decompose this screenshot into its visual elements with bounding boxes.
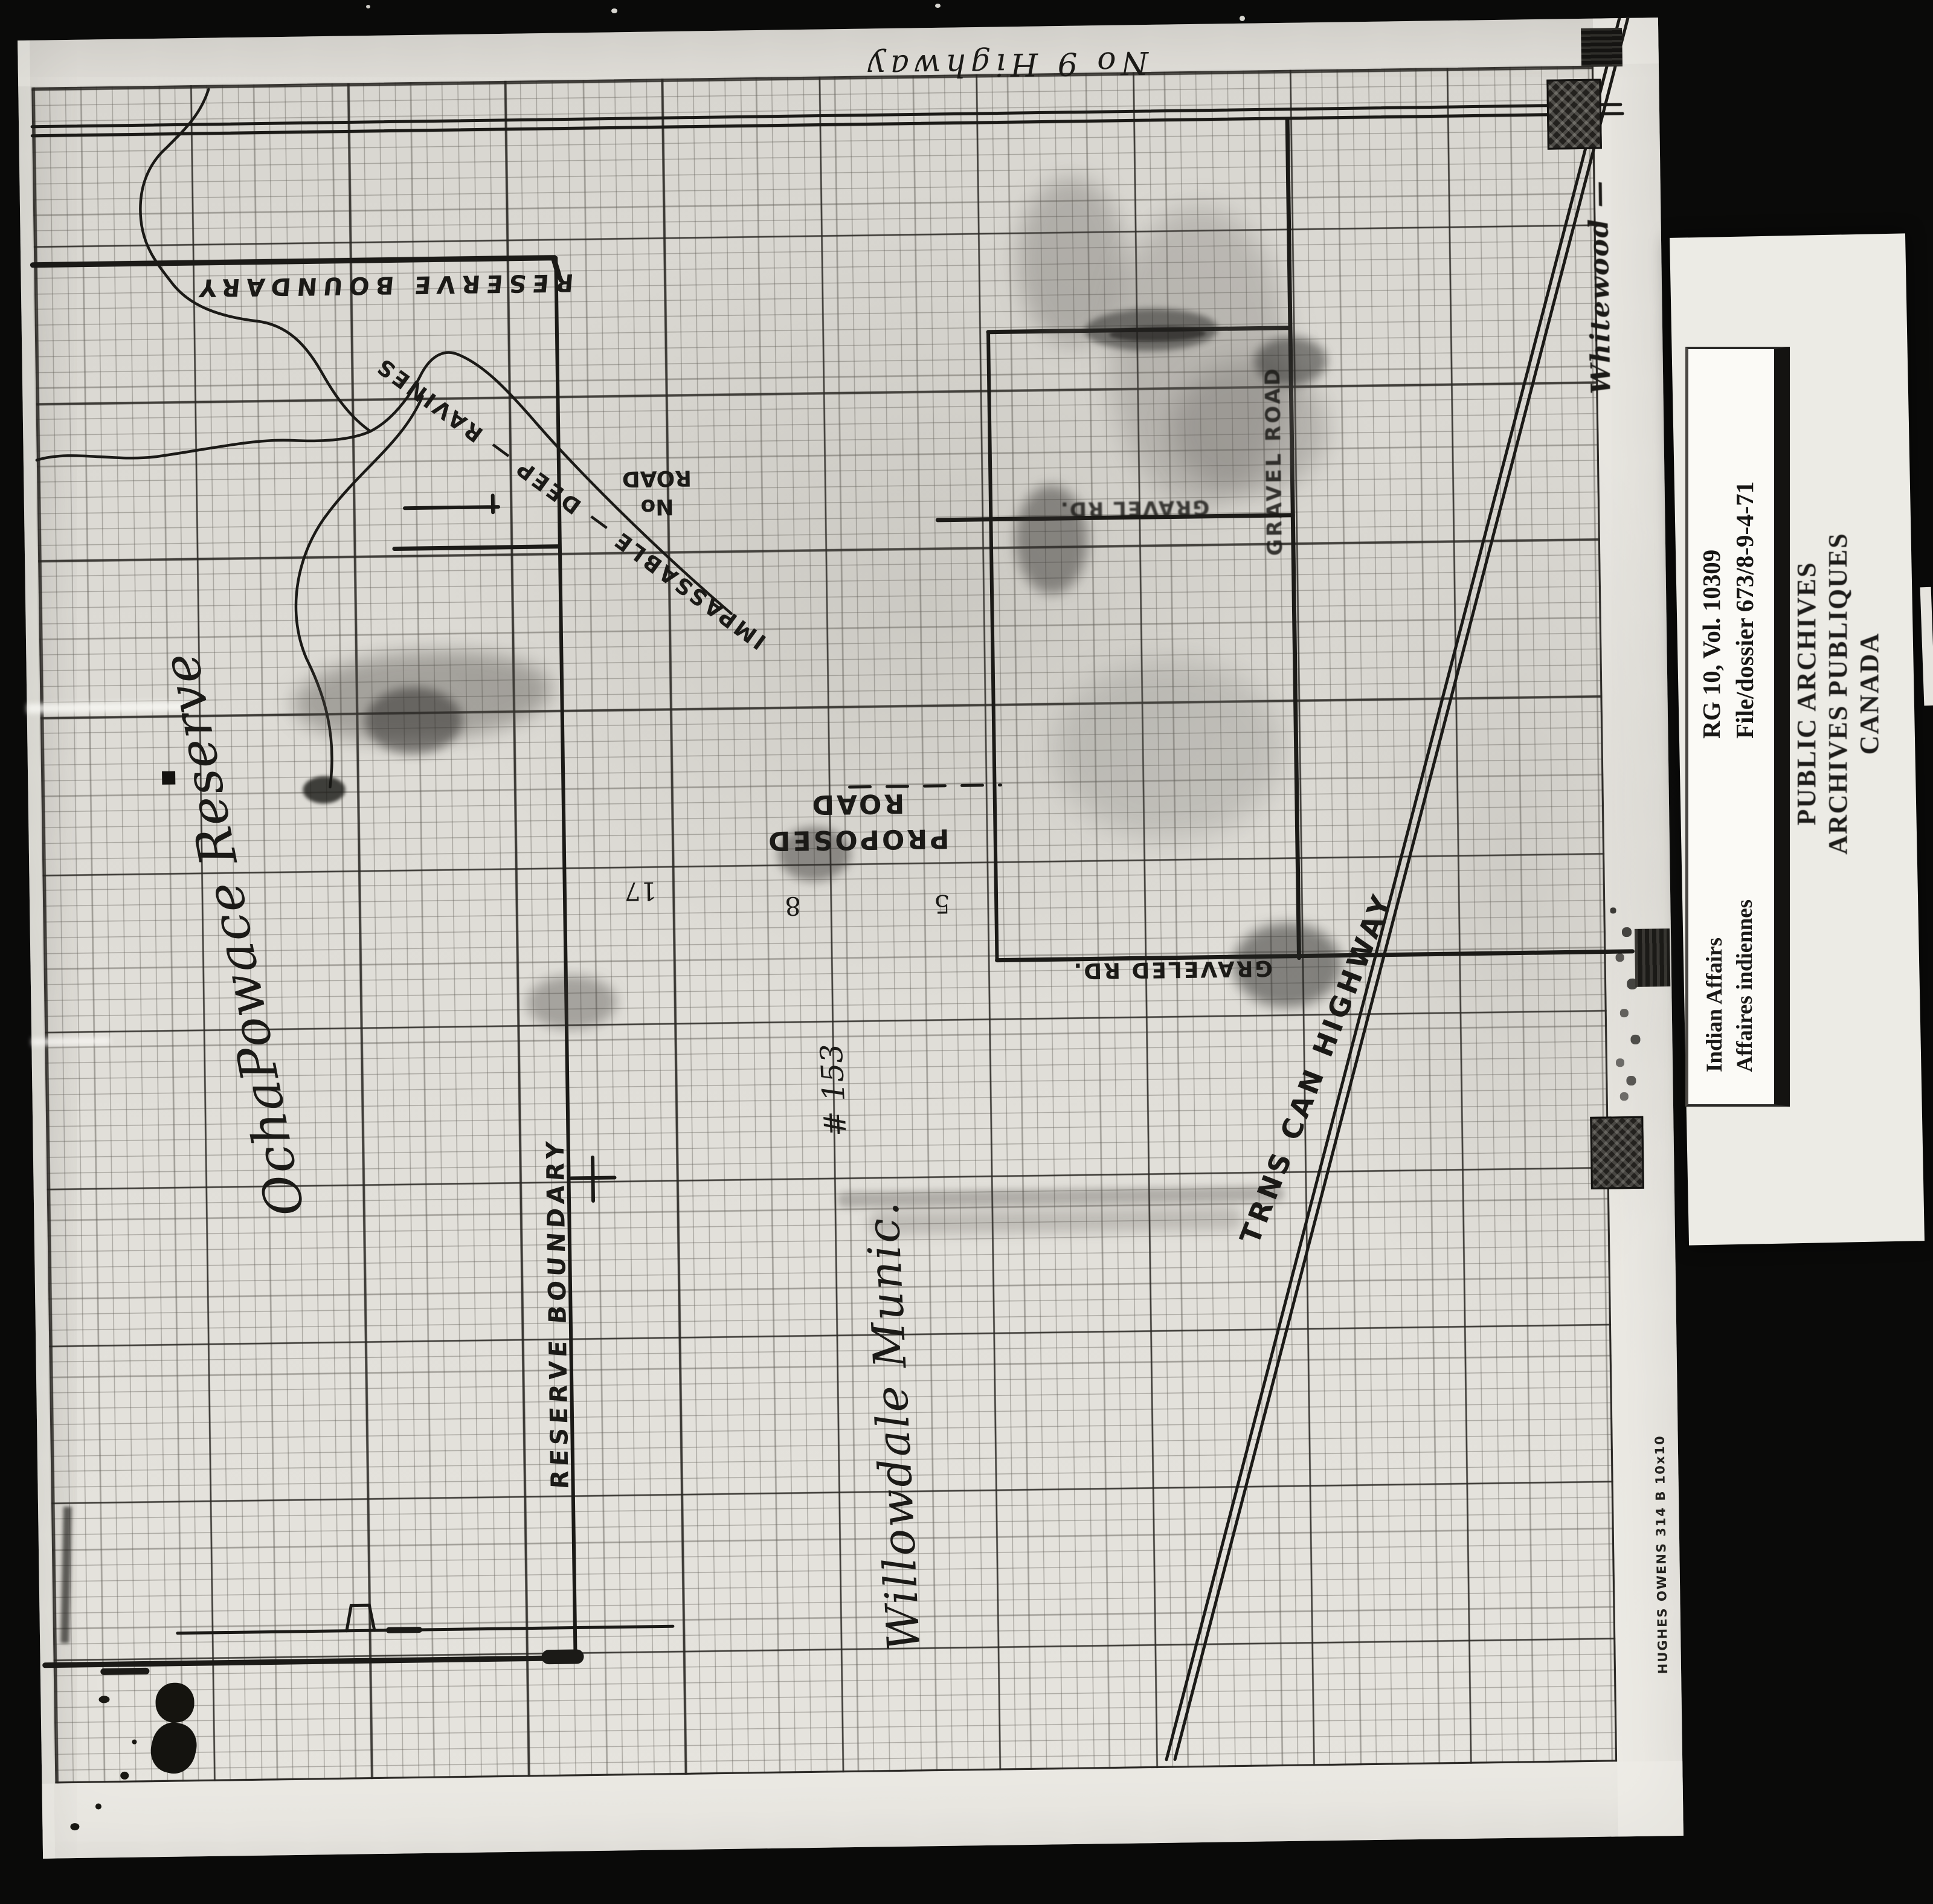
reference-label: RG 10, Vol. 10309 File/dossier 673/8-9-4…	[1695, 481, 1762, 739]
survey-tick	[571, 1157, 615, 1201]
whitewood-label: Whitewood —	[1583, 179, 1617, 394]
tape-patch	[1635, 928, 1670, 987]
section-number-5: 5	[934, 889, 950, 919]
dust-speck	[366, 5, 370, 8]
section-number-17: 17	[625, 876, 657, 906]
building-symbol	[346, 1605, 375, 1631]
crosshatched-square	[1590, 1116, 1644, 1189]
section-road	[394, 547, 559, 549]
south-road-line	[178, 1626, 673, 1633]
gravel-road-vertical-label: GRAVEL ROAD	[1261, 366, 1287, 556]
archival-photo: No 9 Highway RESERVE BOUNDARY OchaPowace…	[0, 0, 1933, 1904]
field-square-left	[988, 332, 997, 960]
ink-speckle-trail	[1610, 907, 1616, 913]
highway-9-line	[32, 105, 1623, 136]
ink-speck	[95, 1803, 101, 1809]
reserve-boundary-west-label: RESERVE BOUNDARY	[542, 1137, 574, 1490]
stamp-line3: CANADA	[1854, 494, 1885, 893]
paper-sliver	[1920, 587, 1933, 706]
no-road-label: No ROAD	[622, 463, 692, 521]
no-road-line1: No	[622, 492, 692, 521]
stamp-line2: ARCHIVES PUBLIQUES	[1822, 494, 1854, 893]
ink-speck	[132, 1740, 137, 1745]
dust-speck	[611, 8, 617, 13]
archive-reference-card: Indian Affairs Affaires indiennes RG 10,…	[1685, 347, 1790, 1107]
section-number-8: 8	[785, 891, 801, 921]
no-road-line2: ROAD	[622, 463, 692, 492]
proposed-road-label: PROPOSED ROAD	[765, 784, 950, 858]
road-dash-dark	[389, 1630, 419, 1630]
public-archives-stamp: PUBLIC ARCHIVES ARCHIVES PUBLIQUES CANAD…	[1791, 494, 1885, 893]
card-text-block: Indian Affairs Affaires indiennes RG 10,…	[1690, 352, 1772, 1101]
gravel-road-vertical-line	[1287, 120, 1299, 958]
reserve-boundary-north-label: RESERVE BOUNDARY	[189, 268, 578, 301]
proposed-road-line1: PROPOSED	[766, 820, 950, 859]
stamp-line1: PUBLIC ARCHIVES	[1791, 494, 1822, 893]
margin-dash	[104, 1671, 146, 1671]
highway-9-label: No 9 Highway	[794, 43, 1217, 85]
dust-speck	[1240, 16, 1245, 21]
proposed-road-line2: ROAD	[765, 784, 949, 823]
map-sheet: No 9 Highway RESERVE BOUNDARY OchaPowace…	[18, 18, 1684, 1859]
ink-blot	[155, 1682, 195, 1723]
gravel-rd-label: GRAVEL RD.	[1060, 495, 1210, 521]
section-road-short	[405, 495, 498, 513]
department-fr: Affaires indiennes	[1730, 899, 1760, 1072]
boundary-end-blob	[549, 1656, 577, 1657]
south-boundary-line	[45, 1658, 578, 1665]
department-en: Indian Affairs	[1700, 899, 1730, 1072]
department-label: Indian Affairs Affaires indiennes	[1700, 899, 1760, 1072]
crosshatched-square	[1546, 79, 1602, 150]
dust-speck	[935, 4, 941, 8]
graveled-rd-label: GRAVELED RD.	[1072, 956, 1273, 983]
record-group: RG 10, Vol. 10309	[1695, 481, 1728, 739]
tape-patch	[1581, 28, 1623, 67]
file-number: File/dossier 673/8-9-4-71	[1728, 481, 1761, 739]
